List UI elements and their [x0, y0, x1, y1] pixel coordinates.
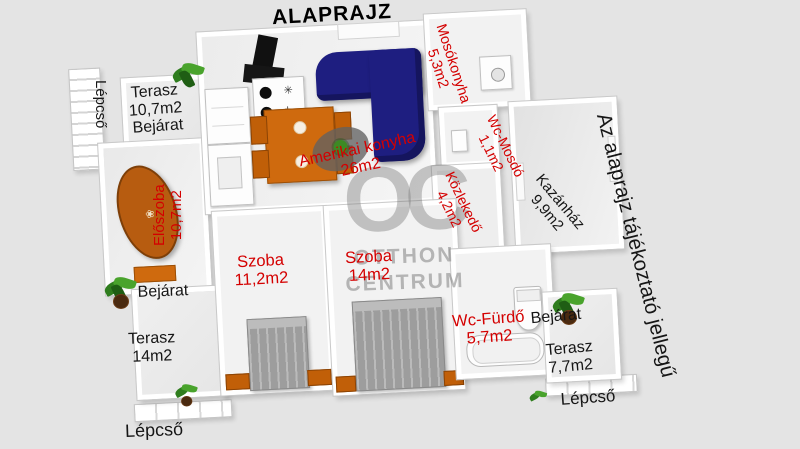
label-lepcso-top-left: Lépcső [91, 80, 108, 128]
label-lepcso-bottom-left: Lépcső [112, 419, 197, 442]
chair [252, 150, 270, 179]
label-terasz-left: Terasz 14m2 [111, 329, 192, 368]
window-sill [307, 369, 332, 386]
bed [352, 297, 447, 392]
console-bench [134, 265, 177, 283]
window-sill [336, 376, 357, 393]
kitchen-counter [207, 143, 254, 207]
label-szoba-1: Szoba 11,2m2 [211, 249, 311, 291]
floor-plan-canvas: ❀ ✳ + [0, 0, 800, 449]
label-bejarat-left: Bejárat [123, 282, 204, 303]
label-terasz-right: Terasz 7,7m2 [529, 337, 612, 380]
potted-plant-icon [173, 383, 198, 408]
bed [246, 316, 310, 391]
room-szoba-1 [212, 206, 335, 396]
label-szoba-2: Szoba 14m2 [319, 245, 419, 287]
window-sill [225, 373, 250, 390]
label-eloszoba: Előszoba 10,7m2 [152, 184, 186, 246]
fridge [204, 87, 251, 145]
washing-machine [479, 55, 513, 91]
chair [250, 116, 268, 145]
sink [217, 156, 243, 189]
